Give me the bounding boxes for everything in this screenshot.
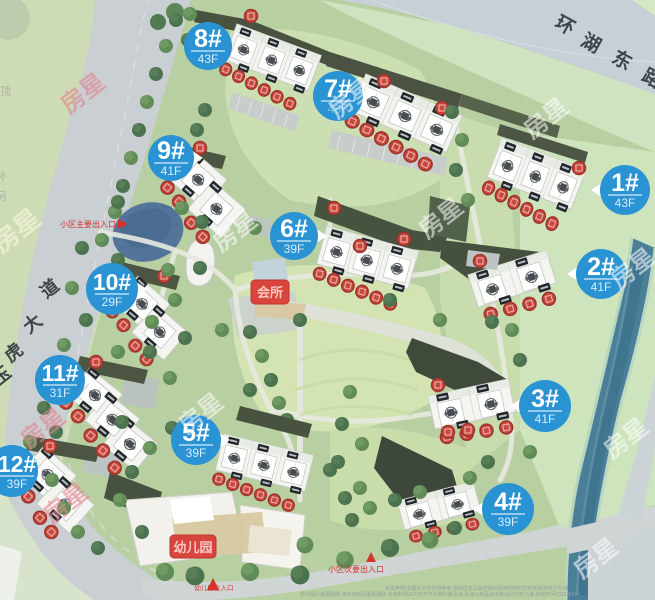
svg-text:免责声明:本图片内容仅供参考,项目信息以政府最终批准的规划文: 免责声明:本图片内容仅供参考,项目信息以政府最终批准的规划文件和实际交付为准	[385, 585, 568, 592]
svg-text:补: 补	[0, 170, 7, 183]
svg-text:39F: 39F	[186, 446, 207, 460]
svg-text:幼儿园主入口: 幼儿园主入口	[195, 583, 234, 592]
svg-text:41F: 41F	[161, 164, 182, 178]
svg-text:6#: 6#	[280, 215, 308, 243]
svg-text:9#: 9#	[157, 137, 185, 165]
svg-text:8#: 8#	[194, 25, 222, 53]
svg-text:小区主要出入口: 小区主要出入口	[60, 219, 116, 229]
svg-text:29F: 29F	[102, 295, 123, 309]
svg-text:10#: 10#	[93, 269, 132, 295]
svg-text:41F: 41F	[591, 280, 612, 294]
svg-text:43F: 43F	[615, 196, 636, 210]
svg-text:幼儿园: 幼儿园	[173, 540, 212, 555]
svg-text:31F: 31F	[50, 386, 71, 400]
svg-text:12#: 12#	[0, 451, 36, 477]
svg-text:4#: 4#	[494, 488, 522, 516]
svg-text:1#: 1#	[611, 169, 639, 197]
svg-text:41F: 41F	[535, 412, 556, 426]
svg-text:43F: 43F	[198, 52, 219, 66]
svg-text:39F: 39F	[7, 477, 28, 491]
svg-text:39F: 39F	[498, 515, 519, 529]
svg-text:11#: 11#	[41, 360, 78, 386]
svg-text:3#: 3#	[531, 385, 559, 413]
svg-text:顶: 顶	[0, 85, 11, 98]
svg-text:会所: 会所	[257, 285, 283, 300]
svg-text:39F: 39F	[284, 242, 305, 256]
svg-text:另: 另	[0, 190, 7, 203]
svg-text:部分图片来源网络,如有侵权请联系删除,本资料相关内容不作为要: 部分图片来源网络,如有侵权请联系删除,本资料相关内容不作为要约或承诺,具体以商品…	[300, 591, 579, 598]
svg-text:小区次要出入口: 小区次要出入口	[328, 564, 384, 574]
